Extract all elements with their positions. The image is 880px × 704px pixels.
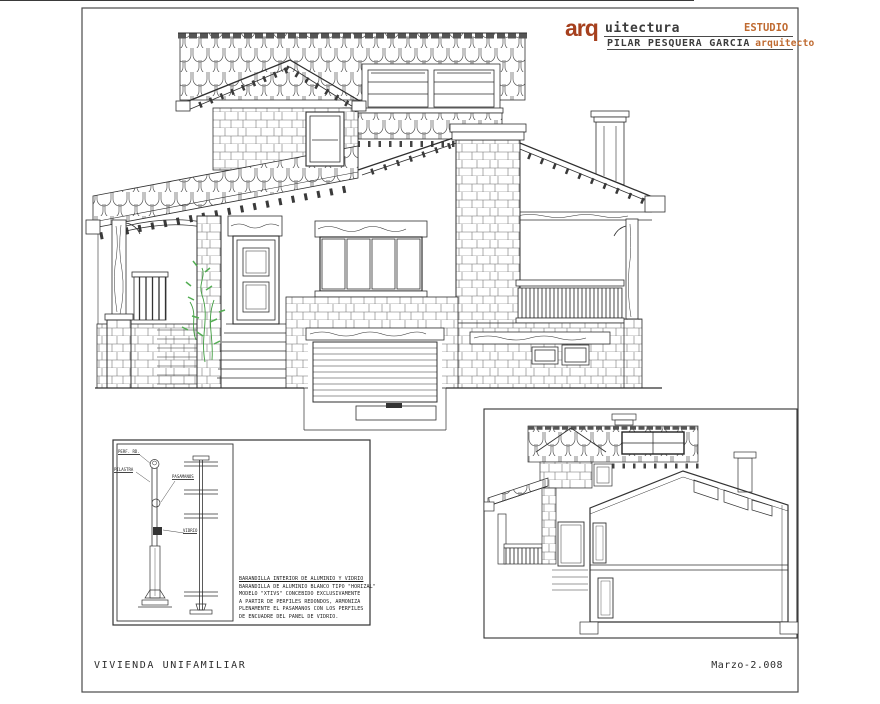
logo-arq: arq — [565, 15, 598, 42]
detail-note-line: BARANDILLA INTERIOR DE ALUMINIO Y VIDRIO — [239, 576, 369, 584]
dormer-window — [306, 112, 344, 166]
garage — [286, 297, 458, 430]
entrance-door — [217, 216, 295, 378]
detail-note-line: DE ENCUADRE DEL PANEL DE VIDRIO. — [239, 614, 369, 622]
architect-role: arquitecto — [755, 38, 814, 49]
detail-callout-3: VIDRIO — [183, 528, 197, 534]
sheet-date: Marzo-2.008 — [711, 660, 783, 671]
logo-uitectura: uitectura — [605, 21, 680, 36]
header-rule-1 — [604, 36, 793, 37]
detail-note-line: MODELO "XTIVS" CONCEBIDO EXCLUSIVAMENTE — [239, 591, 369, 599]
detail-notes: BARANDILLA INTERIOR DE ALUMINIO Y VIDRIO… — [239, 576, 369, 621]
architect-name: PILAR PESQUERA GARCIA — [607, 38, 750, 49]
front-elevation-drawing — [86, 33, 665, 430]
detail-note-line: A PARTIR DE PERFILES REDONDOS, ARMONIZA — [239, 599, 369, 607]
detail-callout-2: PASAMANOS — [172, 474, 194, 480]
project-title: VIVIENDA UNIFAMILIAR — [94, 660, 246, 671]
left-porch — [97, 216, 221, 388]
studio-label: ESTUDIO — [744, 22, 788, 34]
detail-callout-1: PILASTRA — [114, 467, 133, 473]
architect-row: PILAR PESQUERA GARCIAarquitecto — [607, 38, 814, 49]
header-rule-2 — [607, 49, 793, 50]
detail-callout-0: PERF. RD. — [118, 449, 140, 455]
sheet-artwork — [0, 0, 880, 704]
detail-note-line: BARANDILLA DE ALUMINIO BLANCO TIPO "HORI… — [239, 584, 369, 592]
casement-window — [315, 221, 427, 297]
section-drawing — [484, 409, 798, 638]
detail-note-line: PLENAMENTE EL PASAMANOS CON LOS PERFILES — [239, 606, 369, 614]
drawing-sheet: arq uitectura ESTUDIO PILAR PESQUERA GAR… — [0, 0, 880, 704]
